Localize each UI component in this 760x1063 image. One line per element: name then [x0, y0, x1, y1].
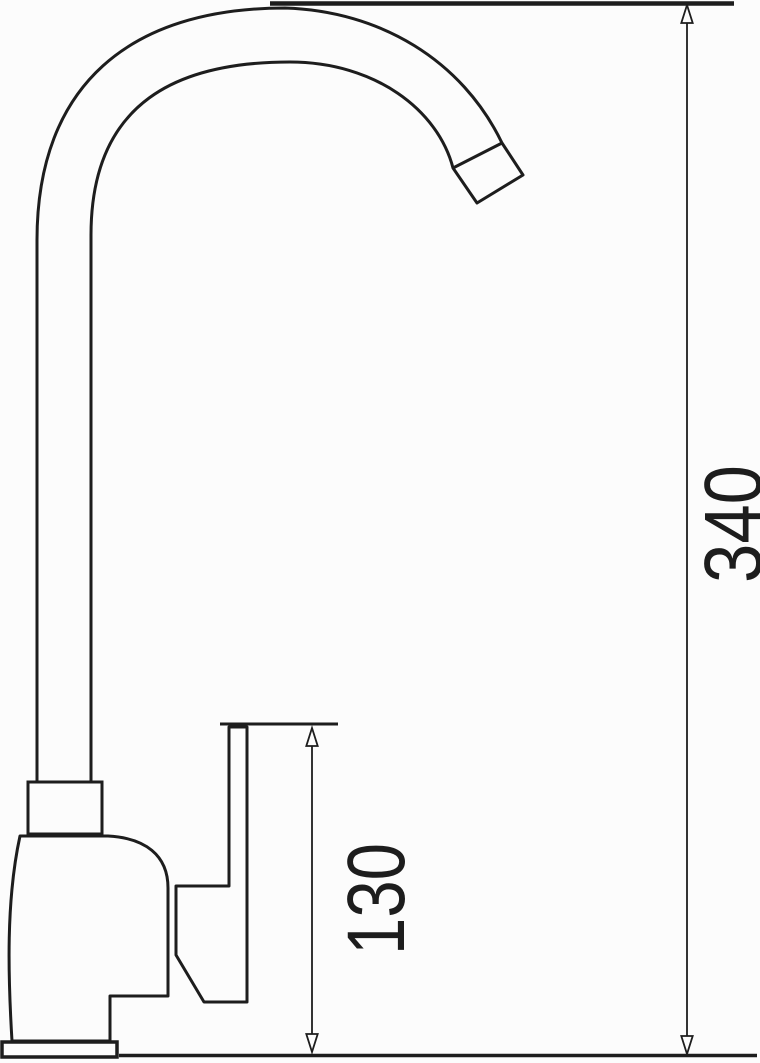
- collar-outline: [28, 782, 102, 834]
- arrowhead-down-icon: [306, 1034, 317, 1052]
- lever-handle-outline: [176, 727, 247, 1002]
- drawing-canvas: 340 130: [0, 0, 760, 1063]
- arrowhead-up-icon: [306, 728, 317, 746]
- arrowhead-up-icon: [681, 5, 692, 23]
- faucet-technical-drawing: 340 130: [0, 0, 760, 1063]
- arrowhead-down-icon: [681, 1036, 692, 1054]
- body-outline: [9, 836, 168, 1041]
- dimension-label-handle-height: 130: [331, 843, 422, 955]
- base-plate-outline: [2, 1042, 117, 1057]
- dimension-label-overall-height: 340: [688, 465, 760, 583]
- spout-outline: [37, 8, 523, 784]
